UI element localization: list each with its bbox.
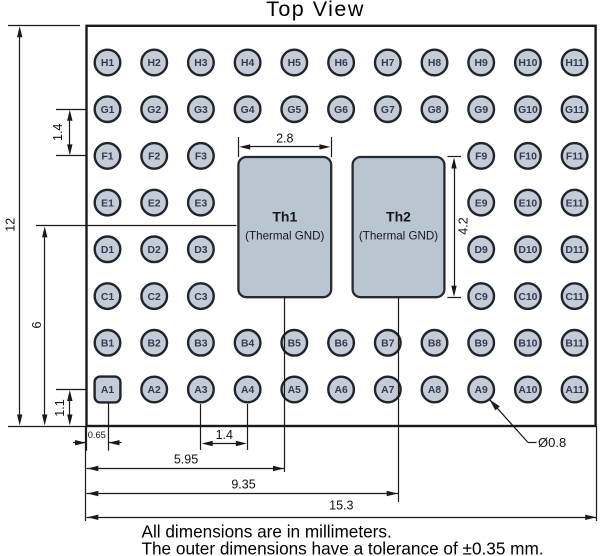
svg-text:0.65: 0.65 bbox=[88, 430, 106, 440]
svg-text:H6: H6 bbox=[334, 58, 348, 69]
svg-text:H5: H5 bbox=[288, 58, 302, 69]
svg-text:C2: C2 bbox=[148, 292, 162, 303]
svg-text:12: 12 bbox=[4, 218, 18, 232]
svg-text:C9: C9 bbox=[475, 292, 489, 303]
svg-text:A10: A10 bbox=[518, 385, 537, 396]
svg-text:F11: F11 bbox=[566, 152, 584, 163]
svg-text:(Thermal GND): (Thermal GND) bbox=[245, 230, 324, 243]
svg-text:F3: F3 bbox=[195, 152, 207, 163]
svg-text:C3: C3 bbox=[194, 292, 208, 303]
svg-text:D10: D10 bbox=[518, 245, 537, 256]
svg-text:Top View: Top View bbox=[266, 0, 365, 21]
svg-text:E10: E10 bbox=[519, 198, 538, 209]
svg-text:B1: B1 bbox=[101, 339, 115, 350]
svg-text:F10: F10 bbox=[519, 152, 537, 163]
svg-text:A8: A8 bbox=[428, 385, 442, 396]
svg-text:E2: E2 bbox=[148, 198, 161, 209]
svg-text:B10: B10 bbox=[518, 339, 537, 350]
svg-text:G7: G7 bbox=[381, 105, 395, 116]
svg-text:B4: B4 bbox=[241, 339, 255, 350]
svg-text:H7: H7 bbox=[381, 58, 395, 69]
svg-text:G10: G10 bbox=[518, 105, 538, 116]
svg-text:D3: D3 bbox=[194, 245, 208, 256]
svg-text:H10: H10 bbox=[518, 58, 537, 69]
svg-text:D1: D1 bbox=[101, 245, 115, 256]
svg-text:G5: G5 bbox=[287, 105, 301, 116]
svg-text:Th2: Th2 bbox=[386, 209, 411, 225]
svg-text:G11: G11 bbox=[565, 105, 584, 116]
svg-text:6: 6 bbox=[30, 321, 44, 328]
svg-text:1.4: 1.4 bbox=[216, 428, 233, 442]
svg-text:5.95: 5.95 bbox=[174, 453, 198, 467]
svg-text:F1: F1 bbox=[101, 152, 113, 163]
svg-text:G1: G1 bbox=[101, 105, 115, 116]
svg-text:G2: G2 bbox=[147, 105, 161, 116]
svg-text:G4: G4 bbox=[241, 105, 255, 116]
svg-text:H4: H4 bbox=[241, 58, 255, 69]
svg-text:A2: A2 bbox=[148, 385, 162, 396]
svg-text:C10: C10 bbox=[518, 292, 537, 303]
svg-text:B11: B11 bbox=[565, 339, 584, 350]
svg-text:G9: G9 bbox=[474, 105, 488, 116]
svg-text:A11: A11 bbox=[565, 385, 584, 396]
svg-text:D9: D9 bbox=[475, 245, 489, 256]
svg-text:E1: E1 bbox=[101, 198, 114, 209]
svg-text:C11: C11 bbox=[565, 292, 584, 303]
svg-text:A3: A3 bbox=[194, 385, 208, 396]
svg-text:E9: E9 bbox=[475, 198, 488, 209]
svg-text:G6: G6 bbox=[334, 105, 348, 116]
svg-text:E11: E11 bbox=[566, 198, 584, 209]
svg-text:B8: B8 bbox=[428, 339, 442, 350]
svg-text:H1: H1 bbox=[101, 58, 115, 69]
svg-text:B7: B7 bbox=[381, 339, 395, 350]
svg-text:1.4: 1.4 bbox=[51, 124, 65, 141]
svg-text:1.1: 1.1 bbox=[53, 399, 67, 416]
svg-text:F2: F2 bbox=[148, 152, 160, 163]
svg-text:H2: H2 bbox=[148, 58, 162, 69]
svg-text:A4: A4 bbox=[241, 385, 255, 396]
svg-text:F9: F9 bbox=[475, 152, 487, 163]
svg-text:E3: E3 bbox=[195, 198, 208, 209]
svg-text:Th1: Th1 bbox=[272, 209, 297, 225]
svg-text:D11: D11 bbox=[565, 245, 584, 256]
svg-text:C1: C1 bbox=[101, 292, 115, 303]
svg-text:B6: B6 bbox=[334, 339, 348, 350]
svg-text:H8: H8 bbox=[428, 58, 442, 69]
svg-text:A1: A1 bbox=[101, 385, 115, 396]
svg-text:Ø0.8: Ø0.8 bbox=[538, 435, 566, 450]
svg-text:B5: B5 bbox=[288, 339, 302, 350]
svg-text:G3: G3 bbox=[194, 105, 208, 116]
svg-text:G8: G8 bbox=[428, 105, 442, 116]
svg-text:D2: D2 bbox=[148, 245, 162, 256]
svg-text:B9: B9 bbox=[475, 339, 489, 350]
svg-text:H11: H11 bbox=[565, 58, 584, 69]
svg-text:H9: H9 bbox=[475, 58, 489, 69]
svg-text:A7: A7 bbox=[381, 385, 395, 396]
svg-text:9.35: 9.35 bbox=[231, 478, 255, 492]
svg-text:4.2: 4.2 bbox=[457, 217, 471, 234]
svg-text:The outer dimensions have a to: The outer dimensions have a tolerance of… bbox=[142, 539, 544, 556]
svg-text:15.3: 15.3 bbox=[329, 498, 353, 512]
svg-text:A9: A9 bbox=[475, 385, 489, 396]
svg-text:A5: A5 bbox=[288, 385, 302, 396]
svg-text:H3: H3 bbox=[194, 58, 208, 69]
svg-text:B2: B2 bbox=[148, 339, 162, 350]
svg-text:(Thermal GND): (Thermal GND) bbox=[359, 230, 438, 243]
svg-text:2.8: 2.8 bbox=[276, 131, 293, 145]
svg-text:B3: B3 bbox=[194, 339, 208, 350]
svg-text:A6: A6 bbox=[334, 385, 348, 396]
